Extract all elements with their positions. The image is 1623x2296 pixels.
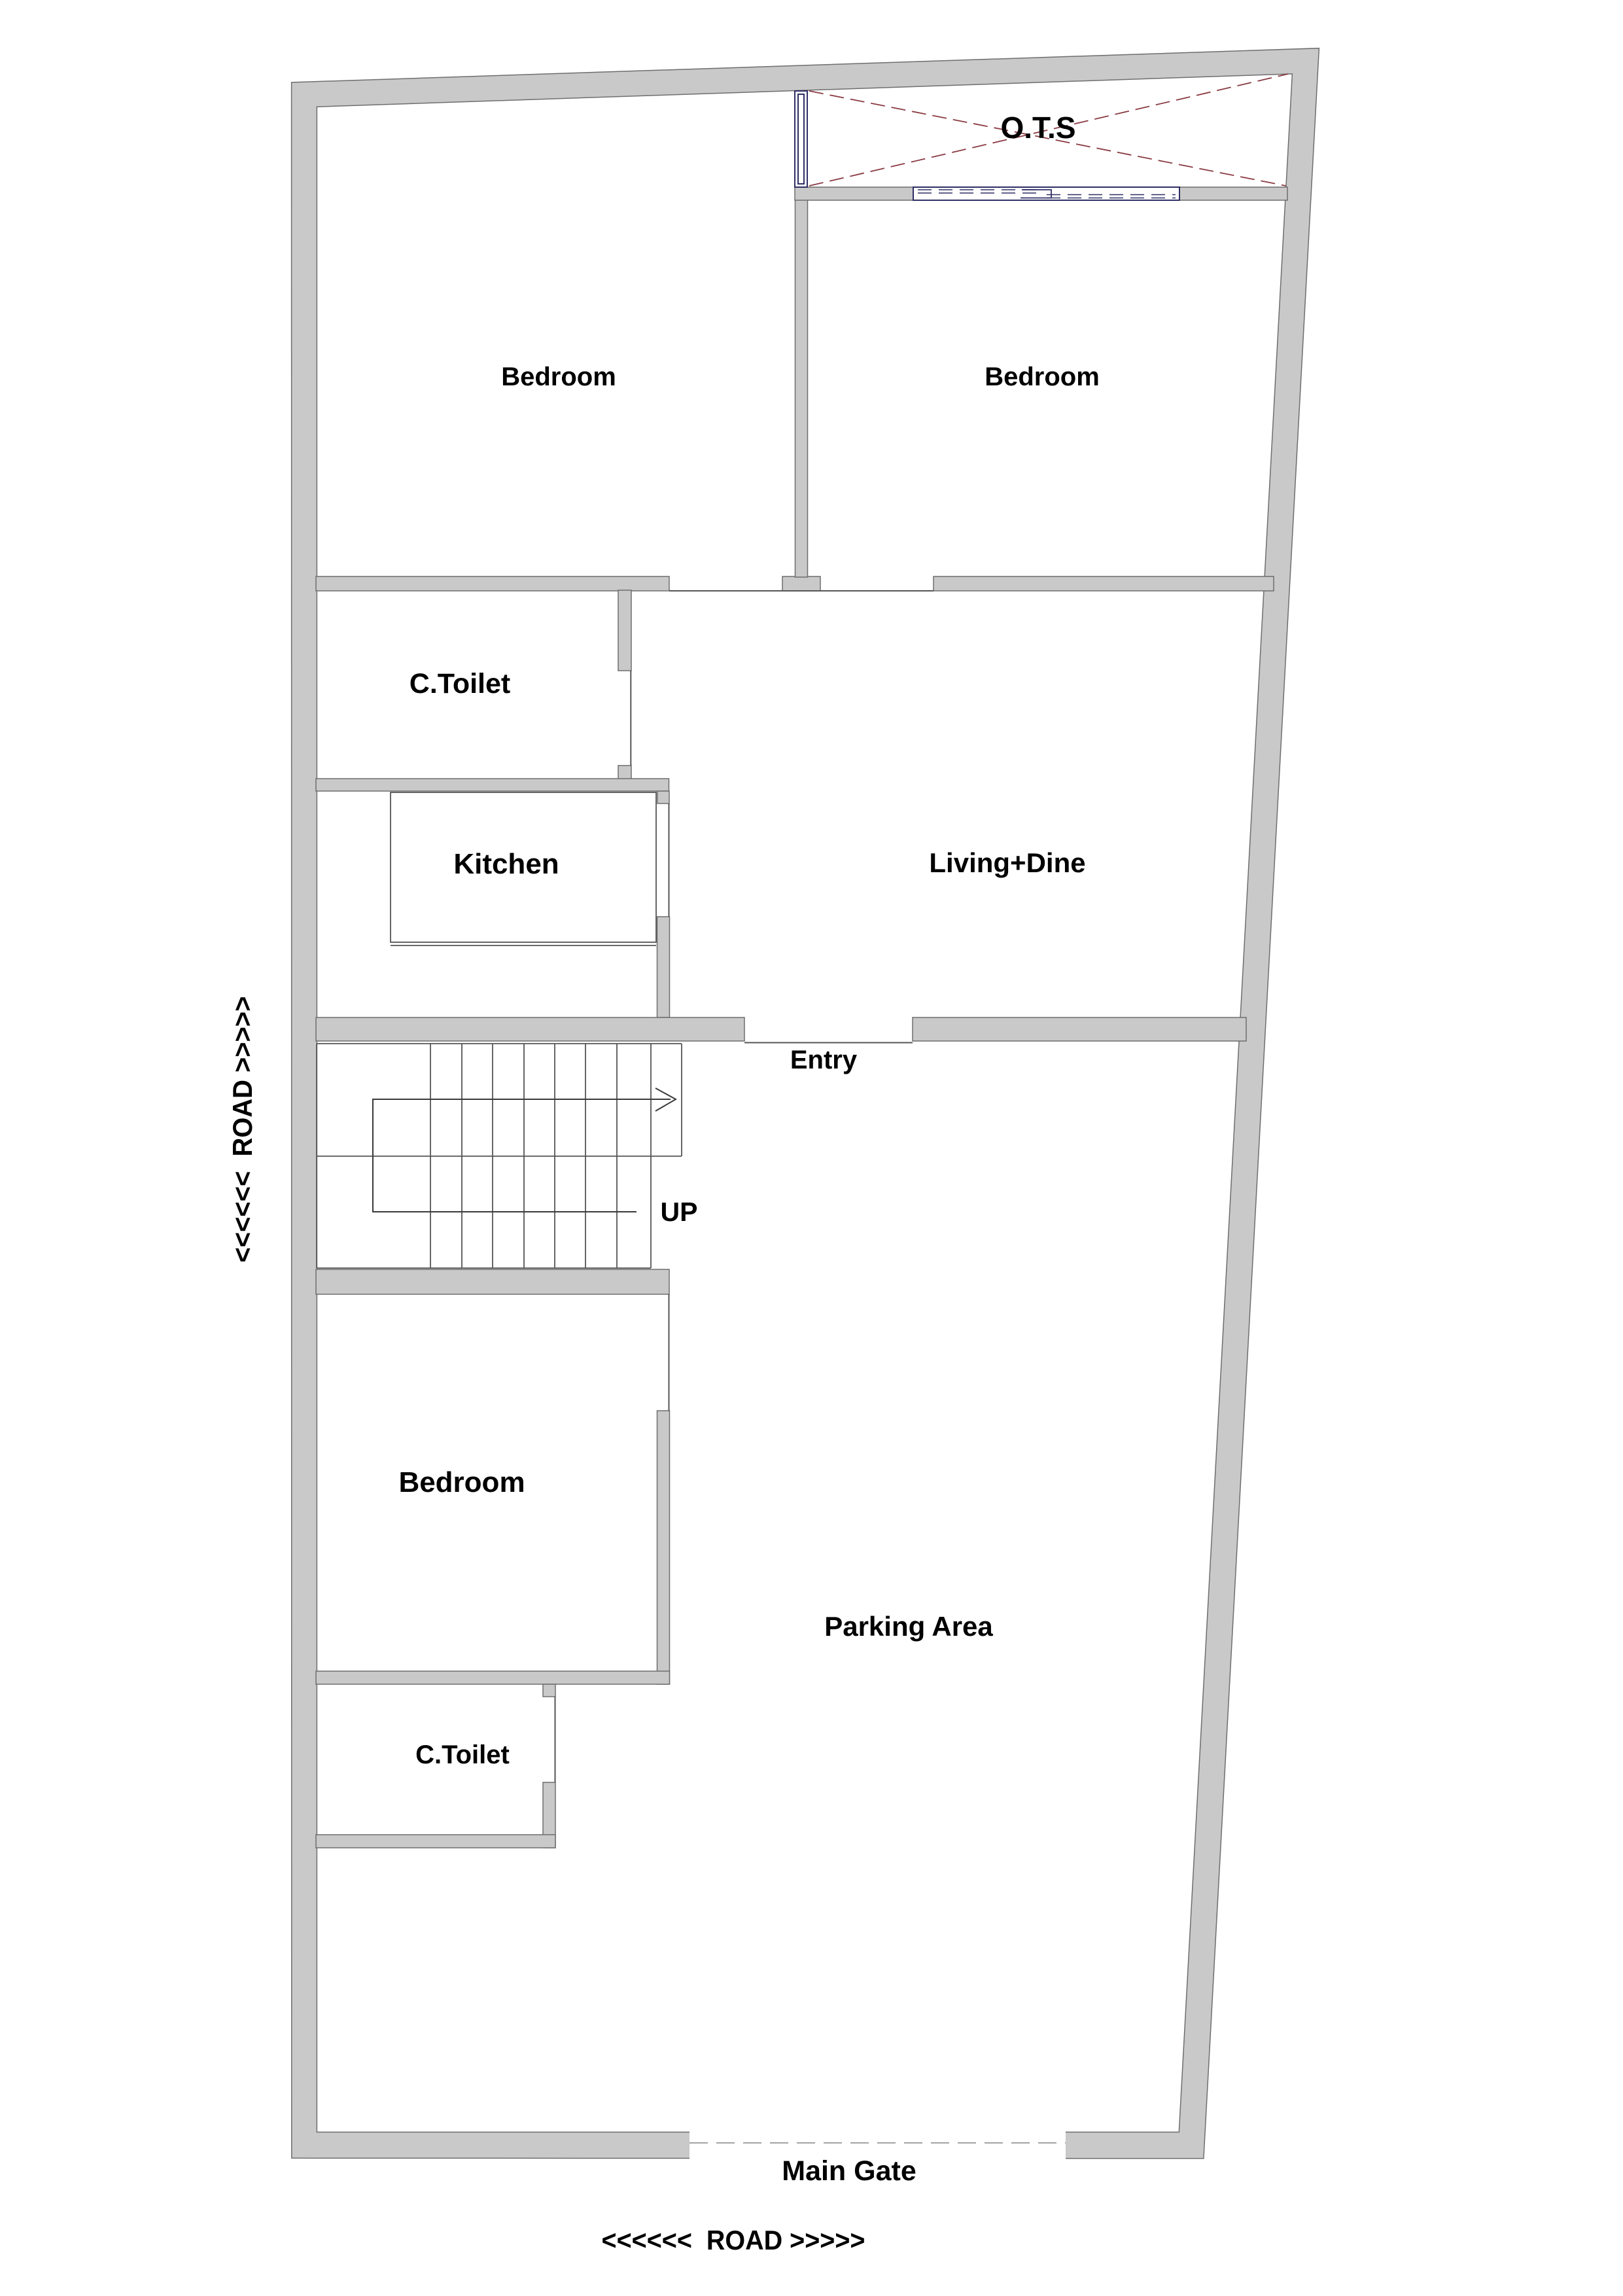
svg-text:Parking Area: Parking Area xyxy=(824,1611,993,1642)
svg-text:Bedroom: Bedroom xyxy=(501,362,616,391)
svg-text:Bedroom: Bedroom xyxy=(398,1466,525,1498)
svg-text:C.Toilet: C.Toilet xyxy=(415,1740,510,1769)
svg-text:<<<<<< ROAD >>>>>: <<<<<< ROAD >>>>> xyxy=(602,2225,865,2255)
svg-text:C.Toilet: C.Toilet xyxy=(410,668,510,699)
svg-text:Living+Dine: Living+Dine xyxy=(929,847,1085,878)
svg-text:Main Gate: Main Gate xyxy=(782,2155,916,2187)
svg-text:UP: UP xyxy=(661,1197,698,1227)
svg-text:Entry: Entry xyxy=(790,1046,858,1074)
svg-text:O.T.S: O.T.S xyxy=(1000,111,1075,145)
svg-text:Bedroom: Bedroom xyxy=(985,362,1100,391)
svg-text:Kitchen: Kitchen xyxy=(453,848,559,880)
svg-text:<<<<<< ROAD >>>>>: <<<<<< ROAD >>>>> xyxy=(227,997,258,1263)
